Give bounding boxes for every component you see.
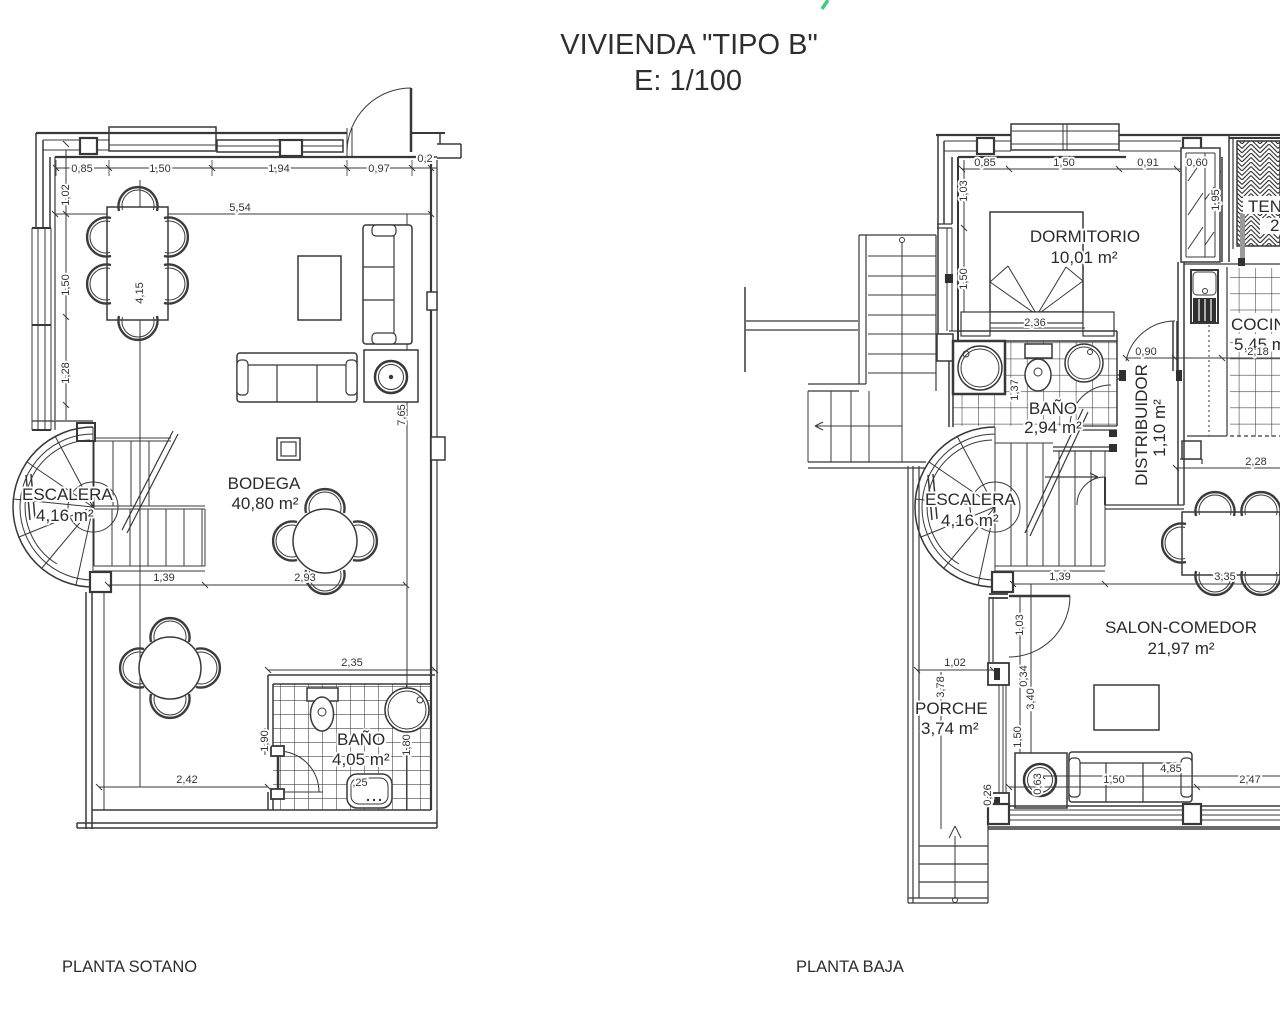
svg-text:1,03: 1,03 <box>1014 614 1026 635</box>
svg-text:1,50: 1,50 <box>149 163 170 175</box>
svg-text:1,02: 1,02 <box>60 184 72 205</box>
svg-text:3,35: 3,35 <box>1214 571 1235 583</box>
svg-text:COCINA: COCINA <box>1231 315 1280 334</box>
svg-text:2,47: 2,47 <box>1239 774 1260 786</box>
svg-text:2,28: 2,28 <box>1245 456 1266 468</box>
svg-text:0,26: 0,26 <box>982 784 994 805</box>
svg-text:1,37: 1,37 <box>1009 379 1021 400</box>
svg-text:ESCALERA: ESCALERA <box>22 485 113 504</box>
svg-text:E: 1/100: E: 1/100 <box>634 65 742 97</box>
svg-text:1,03: 1,03 <box>958 180 970 201</box>
svg-text:1,50: 1,50 <box>60 274 72 295</box>
svg-text:1,50: 1,50 <box>1053 157 1074 169</box>
svg-text:BAÑO: BAÑO <box>1029 399 1077 418</box>
svg-text:3,40: 3,40 <box>1025 688 1037 709</box>
svg-text:PORCHE: PORCHE <box>915 699 988 718</box>
svg-text:2,93: 2,93 <box>294 572 315 584</box>
svg-text:2,18: 2,18 <box>1247 346 1268 358</box>
svg-text:2,42: 2,42 <box>176 774 197 786</box>
svg-text:4,16 m²: 4,16 m² <box>36 506 94 525</box>
svg-text:2,36: 2,36 <box>1024 317 1045 329</box>
svg-text:10,01 m²: 10,01 m² <box>1050 248 1117 267</box>
svg-text:BAÑO: BAÑO <box>337 730 385 749</box>
svg-text:0,60: 0,60 <box>1186 157 1207 169</box>
svg-text:40,80 m²: 40,80 m² <box>231 494 298 513</box>
svg-text:,25: ,25 <box>352 777 367 789</box>
svg-text:1,28: 1,28 <box>60 362 72 383</box>
svg-text:1,50: 1,50 <box>1103 774 1124 786</box>
svg-text:1,10 m²: 1,10 m² <box>1150 399 1169 457</box>
svg-text:0,63: 0,63 <box>1032 773 1044 794</box>
svg-text:DORMITORIO: DORMITORIO <box>1030 227 1140 246</box>
svg-text:1,95: 1,95 <box>1210 189 1222 210</box>
svg-text:ESCALERA: ESCALERA <box>925 490 1016 509</box>
svg-text:0,2: 0,2 <box>417 153 432 165</box>
svg-text:DISTRIBUIDOR: DISTRIBUIDOR <box>1132 364 1151 486</box>
svg-text:3,74 m²: 3,74 m² <box>921 719 979 738</box>
svg-text:0,85: 0,85 <box>974 157 995 169</box>
svg-text:TENDEDERO: TENDEDERO <box>1248 197 1280 216</box>
svg-text:1,39: 1,39 <box>1049 571 1070 583</box>
svg-text:PLANTA SOTANO: PLANTA SOTANO <box>62 958 197 976</box>
svg-text:2,: 2, <box>1270 216 1280 235</box>
svg-text:1,90: 1,90 <box>259 730 271 751</box>
svg-text:1,80: 1,80 <box>401 734 413 755</box>
svg-text:4,05 m²: 4,05 m² <box>332 750 390 769</box>
svg-text:4,15: 4,15 <box>134 282 146 303</box>
svg-text:5,54: 5,54 <box>229 202 250 214</box>
svg-text:1,02: 1,02 <box>944 657 965 669</box>
svg-text:PLANTA BAJA: PLANTA BAJA <box>796 958 904 976</box>
svg-text:3,78: 3,78 <box>935 676 947 697</box>
svg-text:1,50: 1,50 <box>1012 726 1024 747</box>
svg-text:2,35: 2,35 <box>341 657 362 669</box>
svg-text:4,16 m²: 4,16 m² <box>941 511 999 530</box>
svg-text:0,91: 0,91 <box>1137 157 1158 169</box>
svg-text:1,39: 1,39 <box>153 572 174 584</box>
svg-text:1,94: 1,94 <box>268 163 289 175</box>
svg-text:0,85: 0,85 <box>71 163 92 175</box>
svg-text:21,97 m²: 21,97 m² <box>1147 639 1214 658</box>
svg-text:1,50: 1,50 <box>958 268 970 289</box>
svg-text:4,85: 4,85 <box>1160 763 1181 775</box>
svg-text:7,65: 7,65 <box>396 404 408 425</box>
svg-text:VIVIENDA "TIPO B": VIVIENDA "TIPO B" <box>560 29 818 61</box>
svg-text:0,90: 0,90 <box>1135 346 1156 358</box>
svg-text:2,94 m²: 2,94 m² <box>1024 418 1082 437</box>
svg-text:0,97: 0,97 <box>368 163 389 175</box>
svg-text:0,34: 0,34 <box>1018 665 1030 686</box>
svg-text:BODEGA: BODEGA <box>228 474 301 493</box>
svg-text:SALON-COMEDOR: SALON-COMEDOR <box>1105 618 1257 637</box>
